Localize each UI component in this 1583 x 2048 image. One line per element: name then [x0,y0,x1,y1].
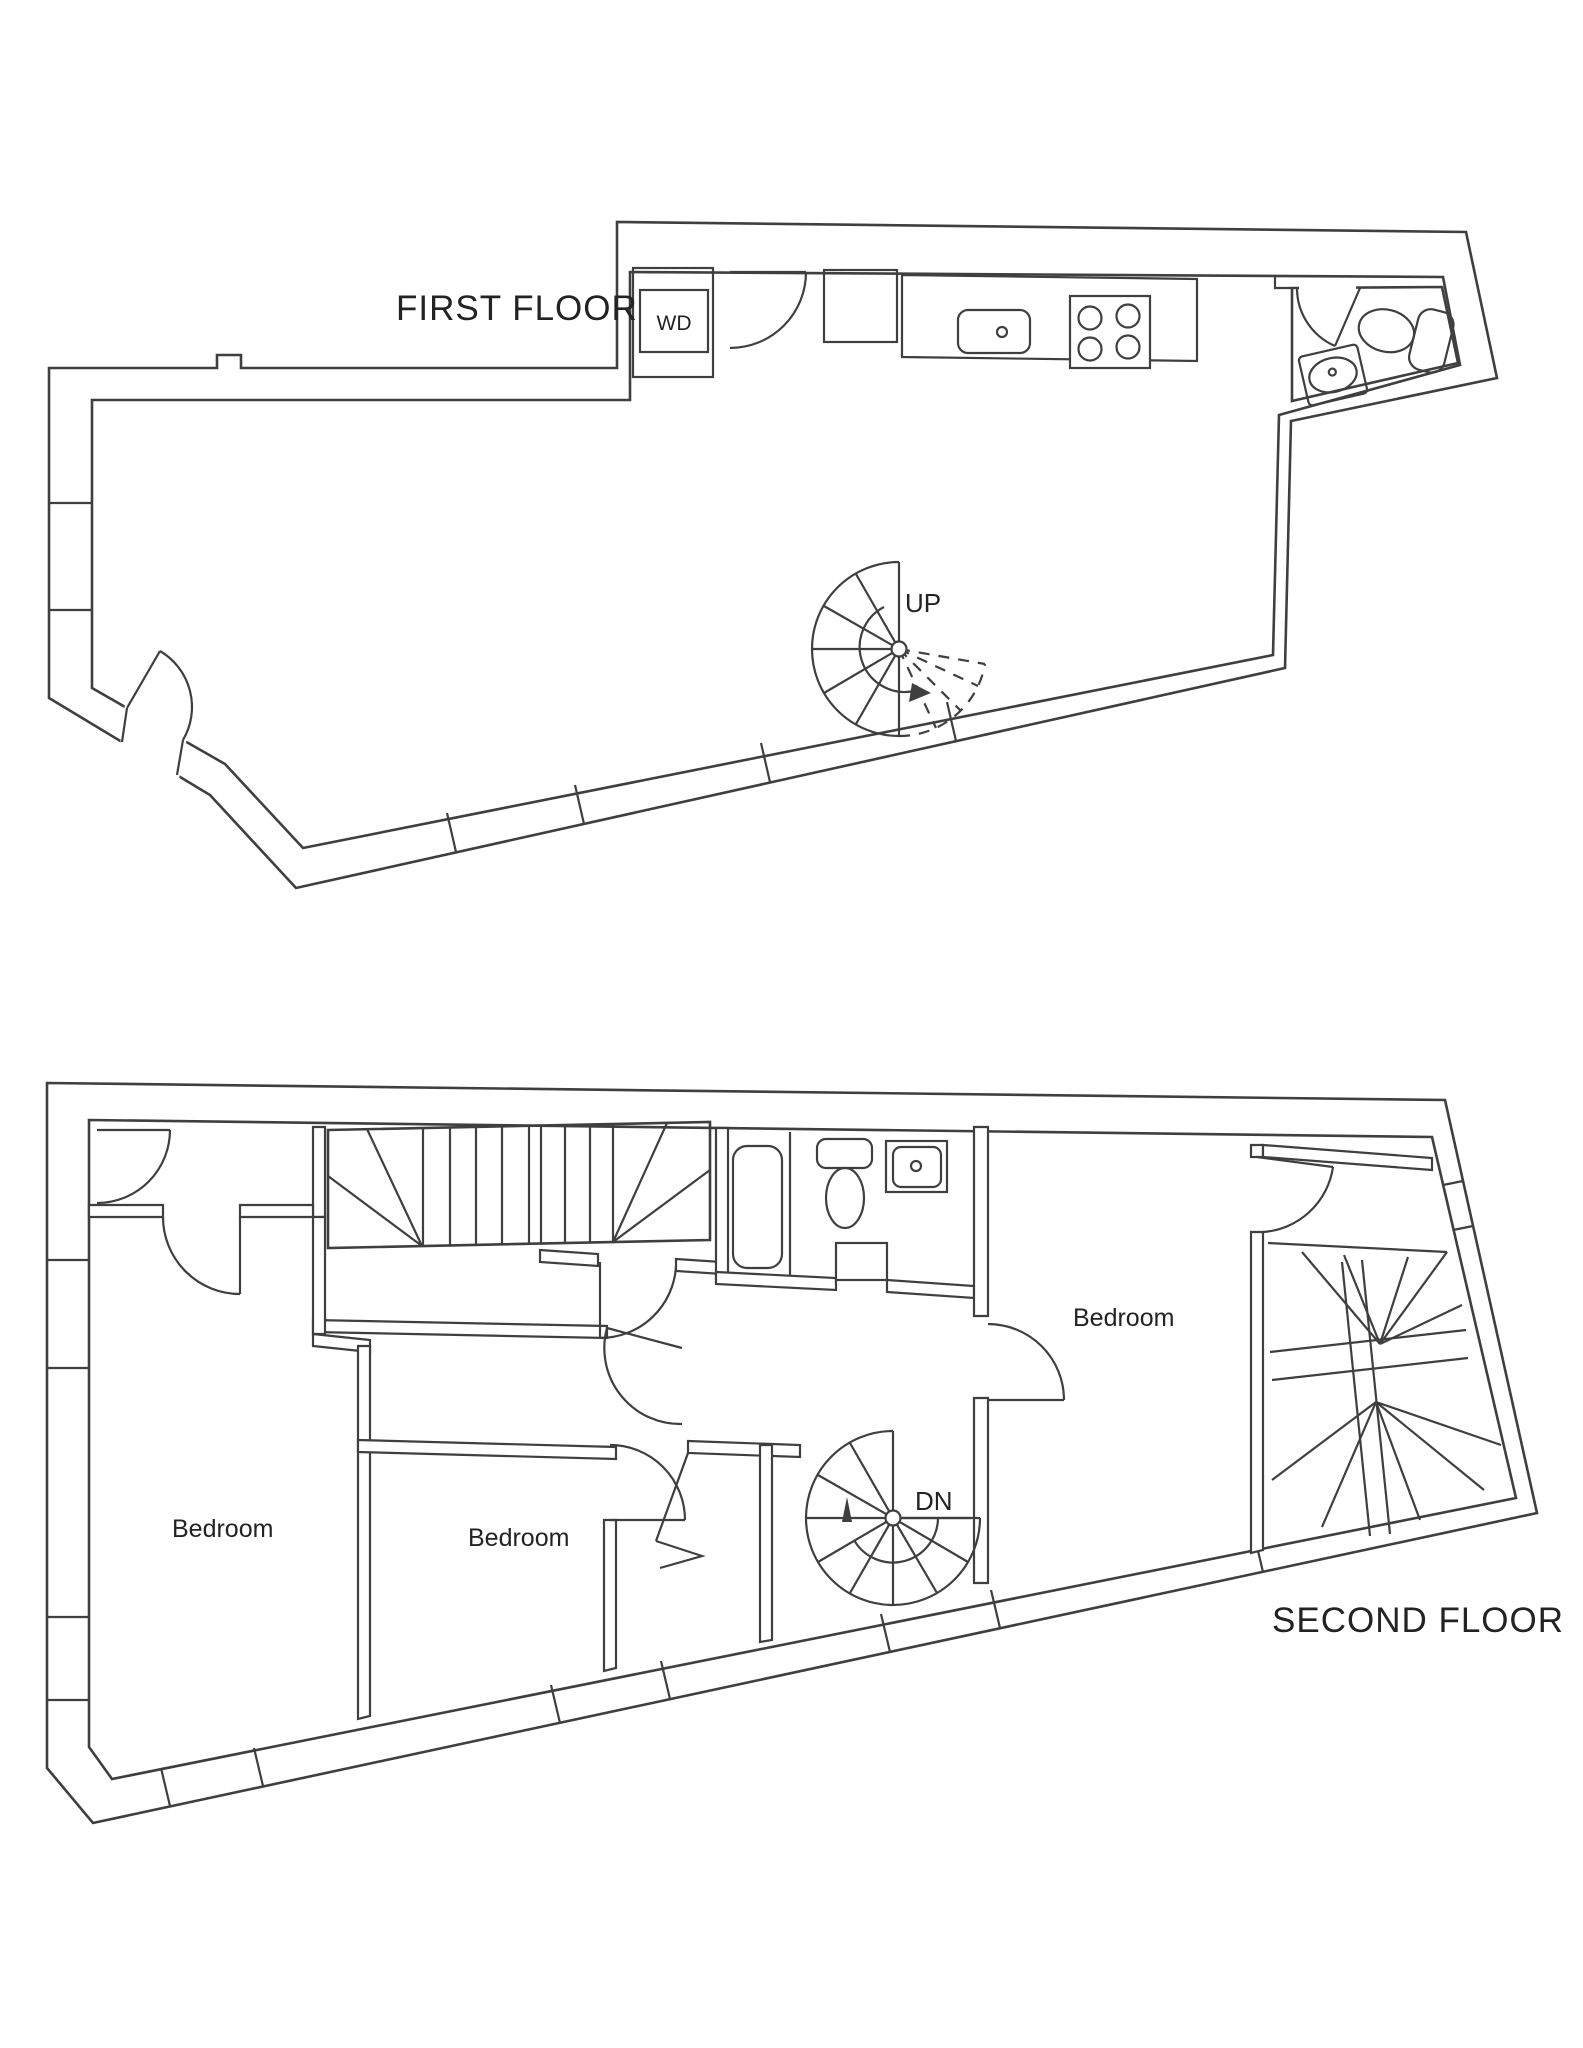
dn-label: DN [915,1486,953,1516]
kitchen-sink [958,310,1030,353]
spiral-staircase-down: DN [806,1431,980,1605]
kitchen-counter [902,275,1197,361]
door-swing [600,1262,676,1338]
door-swing [988,1324,1064,1400]
first-floor-outer-wall [49,222,1497,888]
door-swing [163,1217,240,1294]
up-label: UP [905,588,941,618]
first-floor-inner-wall [92,272,1460,848]
window [161,1534,1263,1806]
stove [1070,296,1150,368]
toilet [817,1139,872,1228]
second-floor-plan: DN Bedroom Bedroom Bedroom SECOND FLOOR [47,1083,1564,1823]
bedroom-center-label: Bedroom [468,1524,569,1552]
right-bedroom-walls [974,1127,1432,1583]
window [47,1260,89,1700]
door-swing [730,272,806,348]
floor-plan-canvas: WD [0,0,1583,2048]
direction-arrow [842,1497,852,1522]
bathroom-first-floor [1275,277,1458,406]
shaft [836,1243,887,1280]
stair-center-post [892,642,907,657]
spiral-staircase-up: UP [812,562,985,736]
door-swing [610,1445,685,1520]
wd-label: WD [657,312,692,335]
bathroom-second-floor [716,1128,974,1298]
stair-enclosure-walls [688,1441,800,1642]
window [447,702,956,852]
second-floor-title: SECOND FLOOR [1272,1601,1564,1640]
door-swing [604,1328,682,1424]
center-bedroom-walls [358,1440,702,1671]
bedroom-left-label: Bedroom [172,1515,273,1543]
stair-center-post [886,1511,901,1526]
door-swing [97,1130,170,1203]
bathroom-sink [886,1141,947,1192]
door-swing [1257,1157,1333,1232]
top-left-room [89,1127,325,1294]
toilet [1352,293,1456,375]
washer-dryer-closet: WD [633,268,713,377]
bathtub [733,1146,782,1268]
window [49,503,92,610]
first-floor-title: FIRST FLOOR [396,289,638,328]
entry-door [120,651,192,779]
bedroom-right-label: Bedroom [1073,1304,1174,1332]
direction-arrow [909,683,931,702]
straight-staircase [328,1122,710,1248]
closet [824,270,897,342]
first-floor-plan: WD [49,222,1497,888]
hallway-walls [313,1217,722,1719]
